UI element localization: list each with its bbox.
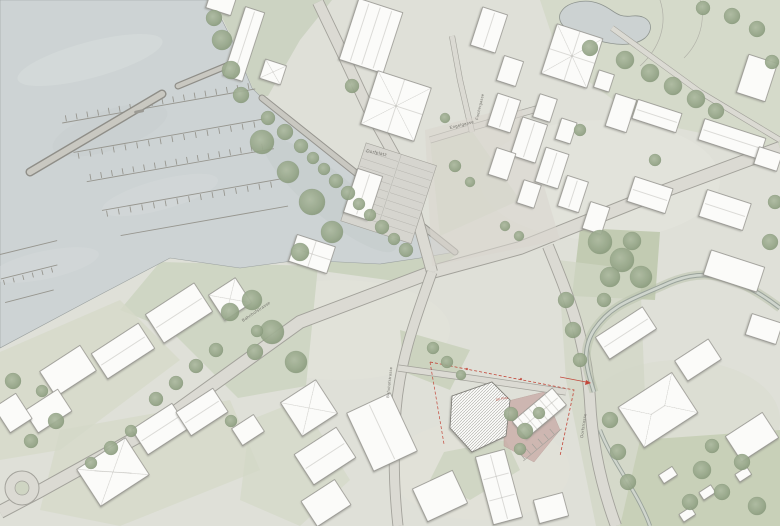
tree xyxy=(318,163,330,175)
tree xyxy=(250,130,274,154)
tree xyxy=(427,342,439,354)
tree xyxy=(169,376,183,390)
tree xyxy=(260,320,284,344)
tree xyxy=(5,373,21,389)
tree xyxy=(149,392,163,406)
tree xyxy=(233,87,249,103)
tree xyxy=(705,439,719,453)
tree xyxy=(345,79,359,93)
tree xyxy=(299,189,325,215)
tree xyxy=(664,77,682,95)
tree xyxy=(696,1,710,15)
tree xyxy=(765,55,779,69)
tree xyxy=(582,40,598,56)
tree xyxy=(714,484,730,500)
tree xyxy=(514,231,524,241)
tree xyxy=(341,186,355,200)
tree xyxy=(277,124,293,140)
tree xyxy=(682,494,698,510)
tree xyxy=(641,64,659,82)
tree xyxy=(616,51,634,69)
tree xyxy=(24,434,38,448)
tree xyxy=(708,103,724,119)
tree xyxy=(353,198,365,210)
tree xyxy=(630,266,652,288)
tree xyxy=(221,303,239,321)
tree xyxy=(125,425,137,437)
tree xyxy=(504,407,518,421)
tree xyxy=(189,359,203,373)
tree xyxy=(294,139,308,153)
tree xyxy=(456,370,466,380)
tree xyxy=(517,423,533,439)
tree xyxy=(574,124,586,136)
tree xyxy=(291,243,309,261)
tree xyxy=(225,415,237,427)
tree xyxy=(600,267,620,287)
tree xyxy=(440,113,450,123)
tree xyxy=(768,195,780,209)
tree xyxy=(399,243,413,257)
tree xyxy=(514,443,526,455)
tree xyxy=(597,293,611,307)
tree xyxy=(206,10,222,26)
tree xyxy=(321,221,343,243)
tree xyxy=(261,111,275,125)
site-plan-map: Dorfplatz Engelgasse Fischergasse Bahnho… xyxy=(0,0,780,526)
tree xyxy=(209,343,223,357)
tree xyxy=(465,177,475,187)
tree xyxy=(500,221,510,231)
tree xyxy=(247,344,263,360)
tree xyxy=(558,292,574,308)
tree xyxy=(623,232,641,250)
tree xyxy=(48,413,64,429)
tree xyxy=(285,351,307,373)
site-plan-canvas: Dorfplatz Engelgasse Fischergasse Bahnho… xyxy=(0,0,780,526)
tree xyxy=(36,385,48,397)
tree xyxy=(307,152,319,164)
tree xyxy=(222,61,240,79)
tree xyxy=(449,160,461,172)
tree xyxy=(388,233,400,245)
tree xyxy=(565,322,581,338)
tree xyxy=(212,30,232,50)
tree xyxy=(588,230,612,254)
tree xyxy=(329,174,343,188)
tree xyxy=(251,325,263,337)
tree xyxy=(724,8,740,24)
tree xyxy=(364,209,376,221)
tree xyxy=(441,356,453,368)
tree xyxy=(533,407,545,419)
tree xyxy=(687,90,705,108)
tree xyxy=(620,474,636,490)
tree xyxy=(602,412,618,428)
tree xyxy=(693,461,711,479)
tree xyxy=(277,161,299,183)
tree xyxy=(762,234,778,250)
tree xyxy=(749,21,765,37)
tree xyxy=(85,457,97,469)
tree xyxy=(104,441,118,455)
tree xyxy=(573,353,587,367)
tree xyxy=(649,154,661,166)
tree xyxy=(748,497,766,515)
tree xyxy=(734,454,750,470)
tree xyxy=(610,444,626,460)
roundabout xyxy=(5,471,39,505)
tree xyxy=(375,220,389,234)
